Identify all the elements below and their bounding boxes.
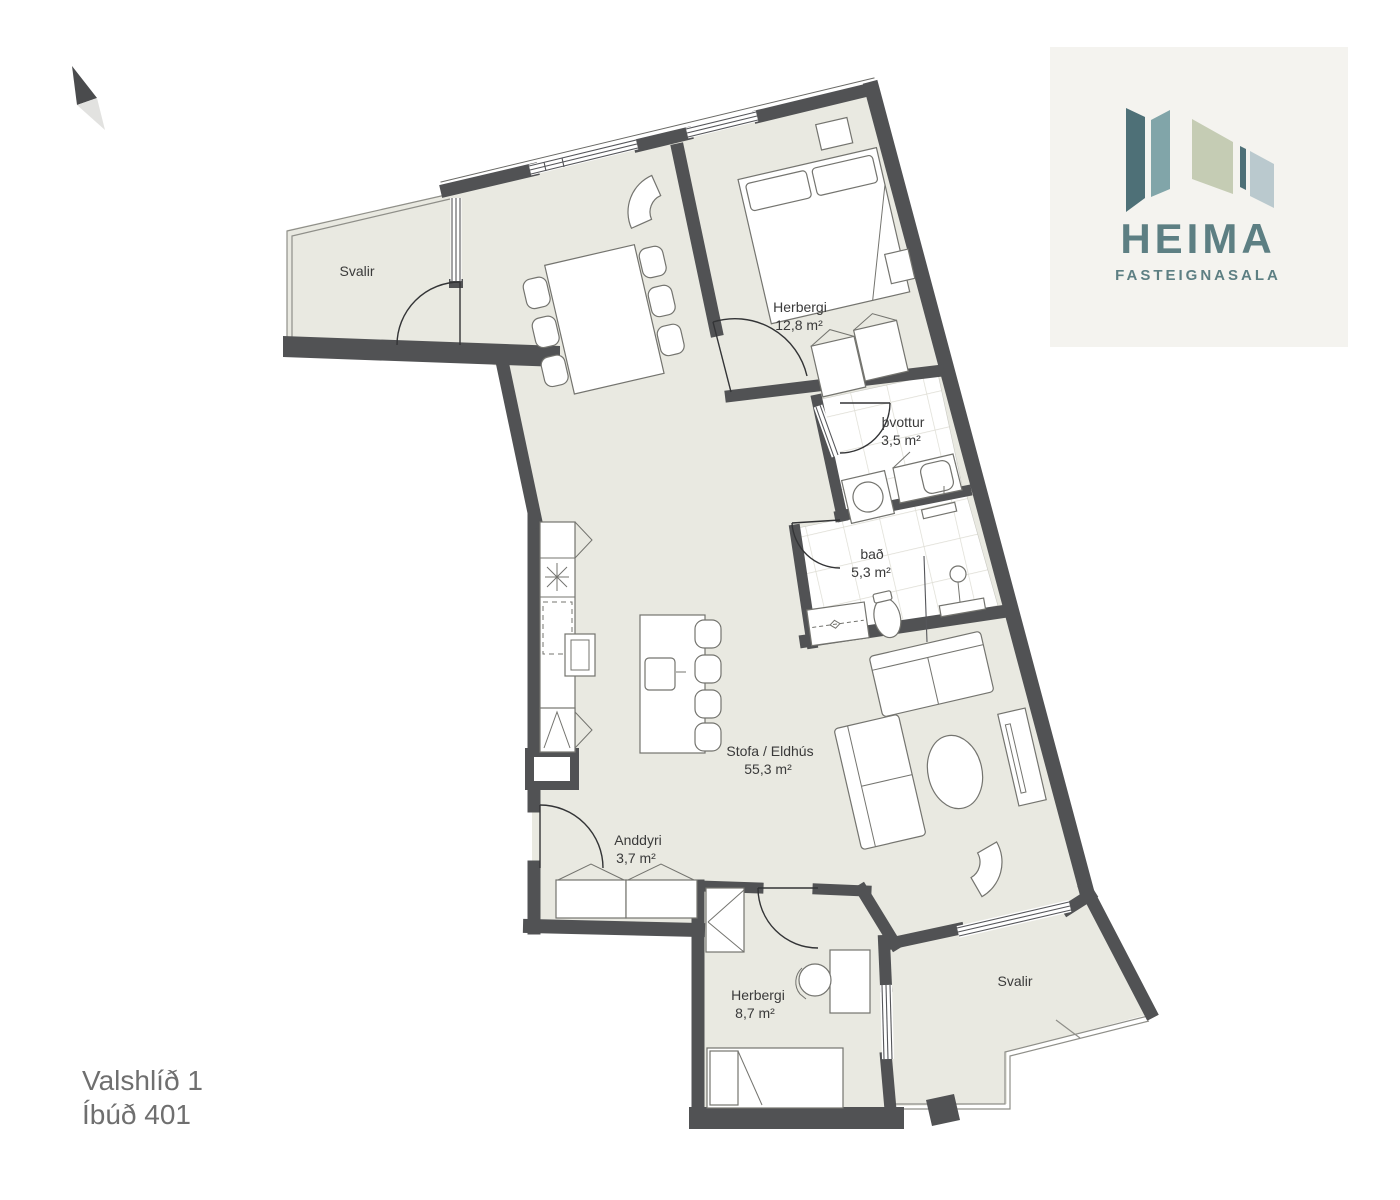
logo-brand-text: HEIMA [1120,215,1275,262]
room-label-herbergi-small: Herbergi [731,987,785,1003]
washing-machine [842,471,895,524]
room-area-anddyri: 3,7 m² [616,850,656,866]
room-area-herbergi-main: 12,8 m² [775,317,823,333]
room-label-svalir-top: Svalir [339,263,374,279]
room-area-herbergi-small: 8,7 m² [735,1005,775,1021]
room-label-stofa: Stofa / Eldhús [726,743,813,759]
logo-panel [1050,47,1348,347]
single-bed [707,1048,843,1108]
wardrobe-small [706,888,744,952]
room-label-anddyri: Anddyri [614,832,661,848]
room-label-bad: bað [860,546,884,562]
room-area-bad: 5,3 m² [851,564,891,580]
logo-subtitle-text: FASTEIGNASALA [1115,267,1281,284]
room-area-stofa: 55,3 m² [744,761,792,777]
desk [830,950,870,1013]
address-street: Valshlíð 1 [82,1065,203,1096]
floor-plan: Svalir Herbergi 12,8 m² þvottur 3,5 m² b… [0,0,1400,1200]
floors [287,84,1150,1108]
room-label-svalir-bottom: Svalir [997,973,1032,989]
agency-logo: HEIMA FASTEIGNASALA [1050,47,1348,347]
room-label-herbergi-main: Herbergi [773,299,827,315]
north-arrow-icon [72,66,105,130]
address-unit: Íbúð 401 [82,1099,191,1130]
fridge-icon [540,708,575,752]
bath-vanity [807,602,869,646]
room-area-thvottur: 3,5 m² [881,432,921,448]
room-label-thvottur: þvottur [882,414,925,430]
address-block: Valshlíð 1 Íbúð 401 [82,1065,203,1130]
